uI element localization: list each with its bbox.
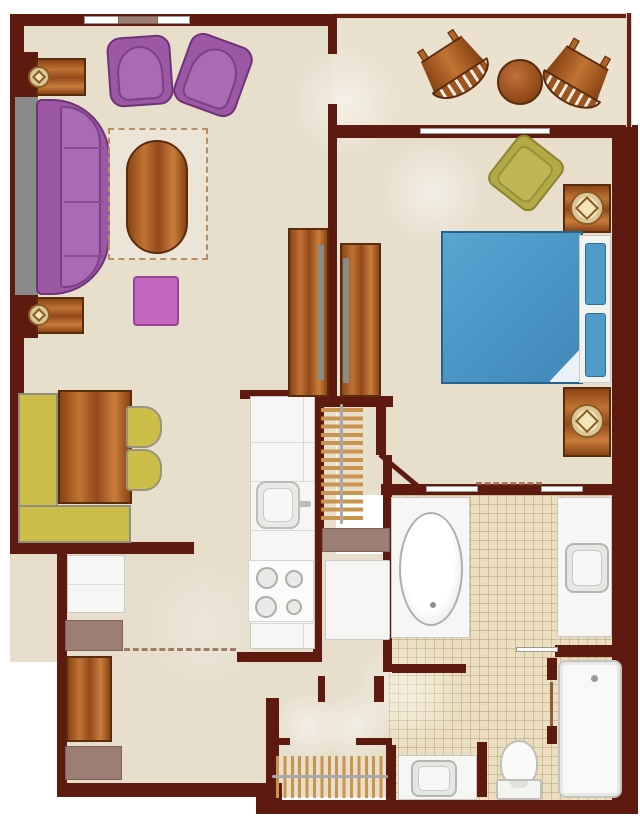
bed-fold-corner [549, 348, 581, 382]
counter-seam [251, 623, 314, 624]
wall-toilet-divider [477, 742, 487, 797]
floor-plan [0, 0, 640, 824]
door-swing-balcony [288, 46, 400, 158]
wall-spine [328, 104, 337, 402]
wall-entry-closet-lintel-a [266, 738, 290, 745]
balcony-railing-right [626, 13, 632, 127]
wall-closet-right [376, 398, 386, 455]
threshold-bath [476, 482, 542, 485]
pocket-door-shower-room [516, 647, 558, 652]
hall-cabinet-seam [68, 584, 124, 585]
closet-rod [340, 404, 343, 524]
corridor-dresser [322, 528, 390, 552]
sofa [36, 99, 110, 295]
armchair-cushion [180, 41, 245, 112]
shower-drain [591, 675, 598, 682]
hall-bench-lower [65, 746, 122, 780]
wall-dining-bottom [10, 542, 194, 554]
counter-seam [251, 530, 314, 531]
wall-kitchen-bottom [237, 652, 322, 662]
pocket-door-vanity [541, 486, 583, 492]
coffee-table [126, 140, 188, 254]
toilet-tank [496, 779, 542, 800]
wall-bottom [268, 800, 636, 814]
burner [256, 567, 278, 589]
wall-bottom-left [57, 783, 270, 797]
wall-entry-closet-lintel-b [356, 738, 392, 745]
sofa-back-console [15, 97, 38, 295]
wall-tubroom-divider [392, 664, 466, 673]
sofa-cushion-line [64, 147, 104, 149]
table-lamp-lower [28, 304, 50, 326]
dining-chair-2 [126, 449, 162, 491]
bed [441, 231, 583, 384]
lamp-finial [575, 196, 599, 220]
sliding-door-bedroom [420, 128, 550, 134]
kitchen-faucet [298, 501, 311, 507]
stove [248, 560, 314, 622]
window-mullion [118, 16, 158, 24]
corridor-cabinet [325, 560, 390, 640]
dining-chair-1 [126, 406, 162, 448]
banquette-bottom [18, 505, 131, 543]
pillow [585, 243, 606, 305]
vanity-sink-bottom [411, 760, 457, 797]
ottoman [133, 276, 179, 326]
wall-shower-stub-a [547, 658, 557, 680]
sofa-seat [60, 106, 101, 288]
wall-under-vanity [555, 645, 627, 657]
wardrobe-panel-right-gap [343, 258, 349, 383]
soaking-tub [399, 512, 463, 626]
hall-console [66, 656, 112, 742]
wall-hall-stub-b [374, 676, 384, 702]
hall-bench-upper [65, 620, 123, 651]
sink-basin [418, 766, 450, 791]
burner [285, 570, 303, 588]
threshold-entry [124, 648, 236, 651]
vanity-sink-right [565, 543, 609, 593]
nightstand-lamp-upper [570, 191, 604, 225]
walk-in-shower [558, 660, 622, 798]
counter-seam-v [303, 623, 304, 650]
burner [255, 596, 277, 618]
entry-closet-rod [272, 775, 388, 778]
nightstand-lamp-lower [570, 404, 604, 438]
armchair-cushion [115, 44, 165, 101]
tub-drain [430, 602, 436, 608]
pocket-door-tub-room [426, 486, 478, 492]
burner [286, 599, 302, 615]
wall-hall-stub-a [318, 676, 325, 702]
lamp-finial [575, 409, 599, 433]
hall-cabinet [67, 555, 125, 613]
wall-entry-closet-right [386, 745, 396, 800]
lamp-finial [32, 308, 46, 322]
dining-table [58, 390, 132, 504]
wall-shower-stub-b [547, 726, 557, 744]
headboard [579, 235, 611, 383]
sofa-cushion-line [64, 255, 104, 257]
toilet-tank-notch [510, 781, 528, 788]
wall-spine-upper [328, 14, 337, 54]
sink-basin [263, 488, 293, 522]
wardrobe-panel-left-gap [318, 245, 324, 380]
door-line-shower [550, 682, 553, 728]
balcony-railing-top [334, 13, 630, 19]
sofa-cushion-line [64, 201, 104, 203]
counter-seam-v [303, 397, 304, 481]
armchair-1 [106, 34, 175, 108]
table-lamp-upper [28, 66, 50, 88]
counter-seam [251, 442, 314, 443]
lamp-finial [32, 70, 46, 84]
sink-basin [572, 550, 602, 586]
kitchen-sink [256, 481, 300, 529]
pillow [585, 313, 606, 377]
